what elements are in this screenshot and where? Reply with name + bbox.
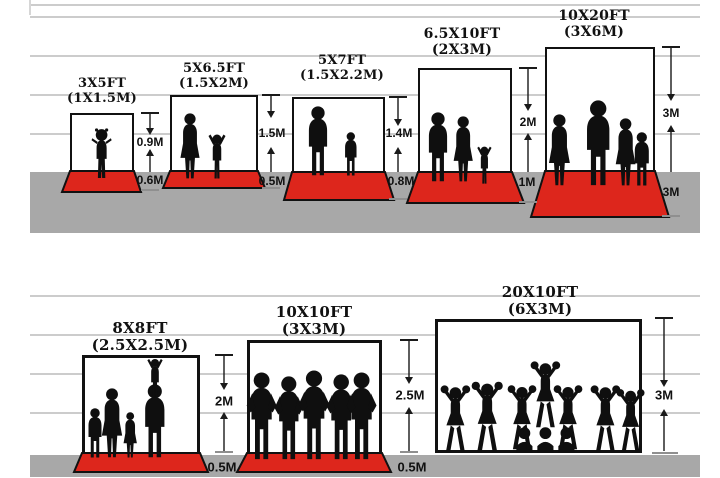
size-ft-label: 20X10FT bbox=[475, 284, 605, 301]
panel-title-6-5x10ft: 6.5X10FT (2X3M) bbox=[397, 27, 527, 58]
ground-band-top bbox=[30, 172, 700, 233]
floor-label-5x6-5ft: 0.5M bbox=[259, 174, 286, 188]
backdrop-10x10ft bbox=[247, 340, 382, 455]
size-m-label: (6X3M) bbox=[475, 301, 605, 318]
size-ft-label: 5X7FT bbox=[277, 54, 407, 69]
size-m-label: (2.5X2.5M) bbox=[75, 337, 205, 354]
panel-title-10x20ft: 10X20FT (3X6M) bbox=[529, 9, 659, 40]
floor-label-3x5ft: 0.6M bbox=[137, 173, 164, 187]
size-ft-label: 5X6.5FT bbox=[149, 62, 279, 77]
floor-label-10x20ft: 3M bbox=[663, 185, 680, 199]
panel-title-8x8ft: 8X8FT (2.5X2.5M) bbox=[75, 320, 205, 354]
height-label-8x8ft: 2M bbox=[215, 394, 233, 409]
height-label-6-5x10ft: 2M bbox=[520, 115, 537, 129]
panel-title-10x10ft: 10X10FT (3X3M) bbox=[249, 304, 379, 338]
backdrop-5x7ft bbox=[292, 97, 385, 173]
edge-mark bbox=[29, 0, 31, 15]
size-m-label: (1.5X2.2M) bbox=[277, 69, 407, 84]
size-ft-label: 10X10FT bbox=[249, 304, 379, 321]
backdrop-10x20ft bbox=[545, 47, 655, 172]
backdrop-5x6-5ft bbox=[170, 95, 258, 172]
height-label-10x20ft: 3M bbox=[663, 106, 680, 120]
floor-label-6-5x10ft: 1M bbox=[519, 175, 536, 189]
floor-label-10x10ft: 0.5M bbox=[398, 460, 427, 475]
panel-title-5x6-5ft: 5X6.5FT (1.5X2M) bbox=[149, 62, 279, 91]
size-m-label: (3X6M) bbox=[529, 25, 659, 41]
backdrop-20x10ft bbox=[435, 319, 642, 453]
panel-title-3x5ft: 3X5FT (1X1.5M) bbox=[37, 77, 167, 106]
backdrop-3x5ft bbox=[70, 113, 134, 172]
ground-band-bottom bbox=[30, 455, 700, 477]
panel-title-5x7ft: 5X7FT (1.5X2.2M) bbox=[277, 54, 407, 83]
backdrop-8x8ft bbox=[82, 355, 200, 455]
floor-label-8x8ft: 0.5M bbox=[208, 460, 237, 475]
size-ft-label: 3X5FT bbox=[37, 77, 167, 92]
height-label-5x7ft: 1.4M bbox=[386, 126, 413, 140]
gridline bbox=[30, 4, 700, 6]
size-ft-label: 6.5X10FT bbox=[397, 27, 527, 43]
size-m-label: (3X3M) bbox=[249, 321, 379, 338]
backdrop-6-5x10ft bbox=[418, 68, 512, 173]
height-label-5x6-5ft: 1.5M bbox=[259, 126, 286, 140]
panel-title-20x10ft: 20X10FT (6X3M) bbox=[475, 284, 605, 318]
size-ft-label: 10X20FT bbox=[529, 9, 659, 25]
height-label-10x10ft: 2.5M bbox=[396, 388, 425, 403]
size-m-label: (2X3M) bbox=[397, 43, 527, 59]
backdrop-size-comparison-diagram: 3X5FT (1X1.5M) 5X6.5FT (1.5X2M) 5X7FT (1… bbox=[0, 0, 720, 478]
height-label-20x10ft: 3M bbox=[655, 388, 673, 403]
dimension-20x10ft bbox=[652, 318, 678, 453]
height-label-3x5ft: 0.9M bbox=[137, 135, 164, 149]
size-m-label: (1.5X2M) bbox=[149, 77, 279, 92]
size-m-label: (1X1.5M) bbox=[37, 92, 167, 107]
size-ft-label: 8X8FT bbox=[75, 320, 205, 337]
floor-label-5x7ft: 0.8M bbox=[388, 174, 415, 188]
